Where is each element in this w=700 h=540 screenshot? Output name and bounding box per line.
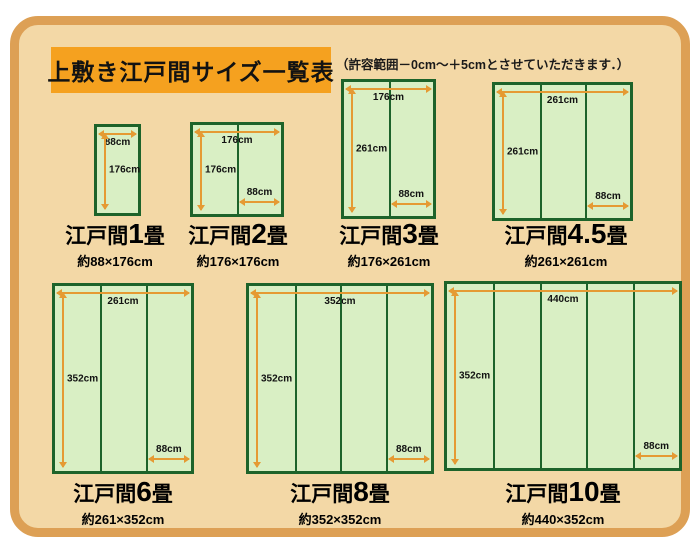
height-arrow [502,92,504,214]
width-dimension-label: 352cm [249,296,431,307]
height-arrow [351,89,353,212]
mat-size: 約88×176cm [45,251,185,270]
width-arrow [57,292,189,294]
mat-series: 江戸間 [505,225,568,248]
mat-unit: 畳 [267,225,288,248]
panel-width-arrow [588,205,628,207]
title-box: 上敷き江戸間サイズ一覧表 [51,47,331,93]
height-dimension-label: 261cm [507,146,538,157]
panel-width-arrow [240,201,279,203]
mat-size: 約352×352cm [260,509,420,528]
mat-diagram-6jo: 261cm 352cm 88cm [52,283,194,474]
panel-divider [295,286,297,471]
panel-divider [386,286,388,471]
tolerance-note: （許容範囲－0cm～＋5cmとさせていただきます．） [336,54,629,73]
panel-divider [100,286,102,471]
width-arrow [195,131,279,133]
mat-size: 約261×352cm [43,509,203,528]
width-arrow [497,91,628,93]
height-arrow [454,291,456,464]
mat-count: 10 [568,476,599,507]
page-title: 上敷き江戸間サイズ一覧表 [47,53,334,87]
caption-2jo: 江戸間2畳 約176×176cm [168,221,308,270]
height-arrow [200,132,202,210]
mat-unit: 畳 [152,483,173,506]
mat-series: 江戸間 [188,225,251,248]
mat-count: 6 [136,476,152,507]
mat-name: 江戸間10畳 [483,479,643,508]
panel-divider [586,284,588,468]
height-arrow [62,293,64,467]
mat-unit: 畳 [600,483,621,506]
caption-4-5jo: 江戸間4.5畳 約261×261cm [486,221,646,270]
caption-8jo: 江戸間8畳 約352×352cm [260,479,420,528]
mat-size: 約261×261cm [486,251,646,270]
panel-width-arrow [392,203,432,205]
mat-series: 江戸間 [65,225,128,248]
panel-divider [633,284,635,468]
width-dimension-label: 261cm [55,296,191,307]
width-arrow [251,292,429,294]
mat-diagram-1jo: 88cm 176cm [94,124,141,216]
panel-divider [493,284,495,468]
mat-name: 江戸間3畳 [319,221,459,250]
height-dimension-label: 176cm [109,165,140,176]
panel-width-label: 88cm [588,191,628,202]
width-dimension-label: 261cm [495,95,630,106]
width-arrow [346,88,431,90]
caption-3jo: 江戸間3畳 約176×261cm [319,221,459,270]
panel-width-label: 88cm [636,441,677,452]
mat-count: 4.5 [568,218,607,249]
mat-size: 約176×261cm [319,251,459,270]
height-arrow [256,293,258,467]
width-arrow [449,290,677,292]
mat-diagram-2jo: 176cm 176cm 88cm [190,122,284,217]
chart-frame: 上敷き江戸間サイズ一覧表 （許容範囲－0cm～＋5cmとさせていただきます．） … [10,16,690,537]
height-dimension-label: 352cm [261,373,292,384]
mat-name: 江戸間8畳 [260,479,420,508]
height-dimension-label: 176cm [205,164,236,175]
mat-series: 江戸間 [505,483,568,506]
panel-width-label: 88cm [392,189,432,200]
height-arrow [104,134,106,209]
mat-diagram-3jo: 176cm 261cm 88cm [341,79,436,219]
width-dimension-label: 440cm [447,294,679,305]
mat-count: 8 [353,476,369,507]
width-dimension-label: 176cm [193,135,281,146]
panel-width-label: 88cm [240,187,279,198]
mat-diagram-4-5jo: 261cm 261cm 88cm [492,82,633,221]
height-dimension-label: 352cm [67,373,98,384]
mat-name: 江戸間6畳 [43,479,203,508]
mat-unit: 畳 [369,483,390,506]
mat-unit: 畳 [418,225,439,248]
height-dimension-label: 352cm [459,371,490,382]
mat-diagram-10jo: 440cm 352cm 88cm [444,281,682,471]
mat-unit: 畳 [144,225,165,248]
mat-count: 1 [128,218,144,249]
panel-width-label: 88cm [149,444,189,455]
panel-divider [540,284,542,468]
mat-diagram-8jo: 352cm 352cm 88cm [246,283,434,474]
mat-size: 約176×176cm [168,251,308,270]
mat-name: 江戸間4.5畳 [486,221,646,250]
mat-name: 江戸間1畳 [45,221,185,250]
mat-name: 江戸間2畳 [168,221,308,250]
mat-series: 江戸間 [290,483,353,506]
height-dimension-label: 261cm [356,144,387,155]
panel-width-arrow [149,458,189,460]
caption-1jo: 江戸間1畳 約88×176cm [45,221,185,270]
caption-6jo: 江戸間6畳 約261×352cm [43,479,203,528]
panel-width-label: 88cm [389,444,430,455]
panel-width-arrow [636,455,677,457]
mat-series: 江戸間 [73,483,136,506]
mat-size: 約440×352cm [483,509,643,528]
mat-count: 2 [251,218,267,249]
caption-10jo: 江戸間10畳 約440×352cm [483,479,643,528]
panel-width-arrow [389,458,430,460]
mat-unit: 畳 [606,225,627,248]
panel-divider [146,286,148,471]
mat-series: 江戸間 [339,225,402,248]
width-dimension-label: 176cm [344,92,433,103]
panel-divider [340,286,342,471]
mat-count: 3 [402,218,418,249]
